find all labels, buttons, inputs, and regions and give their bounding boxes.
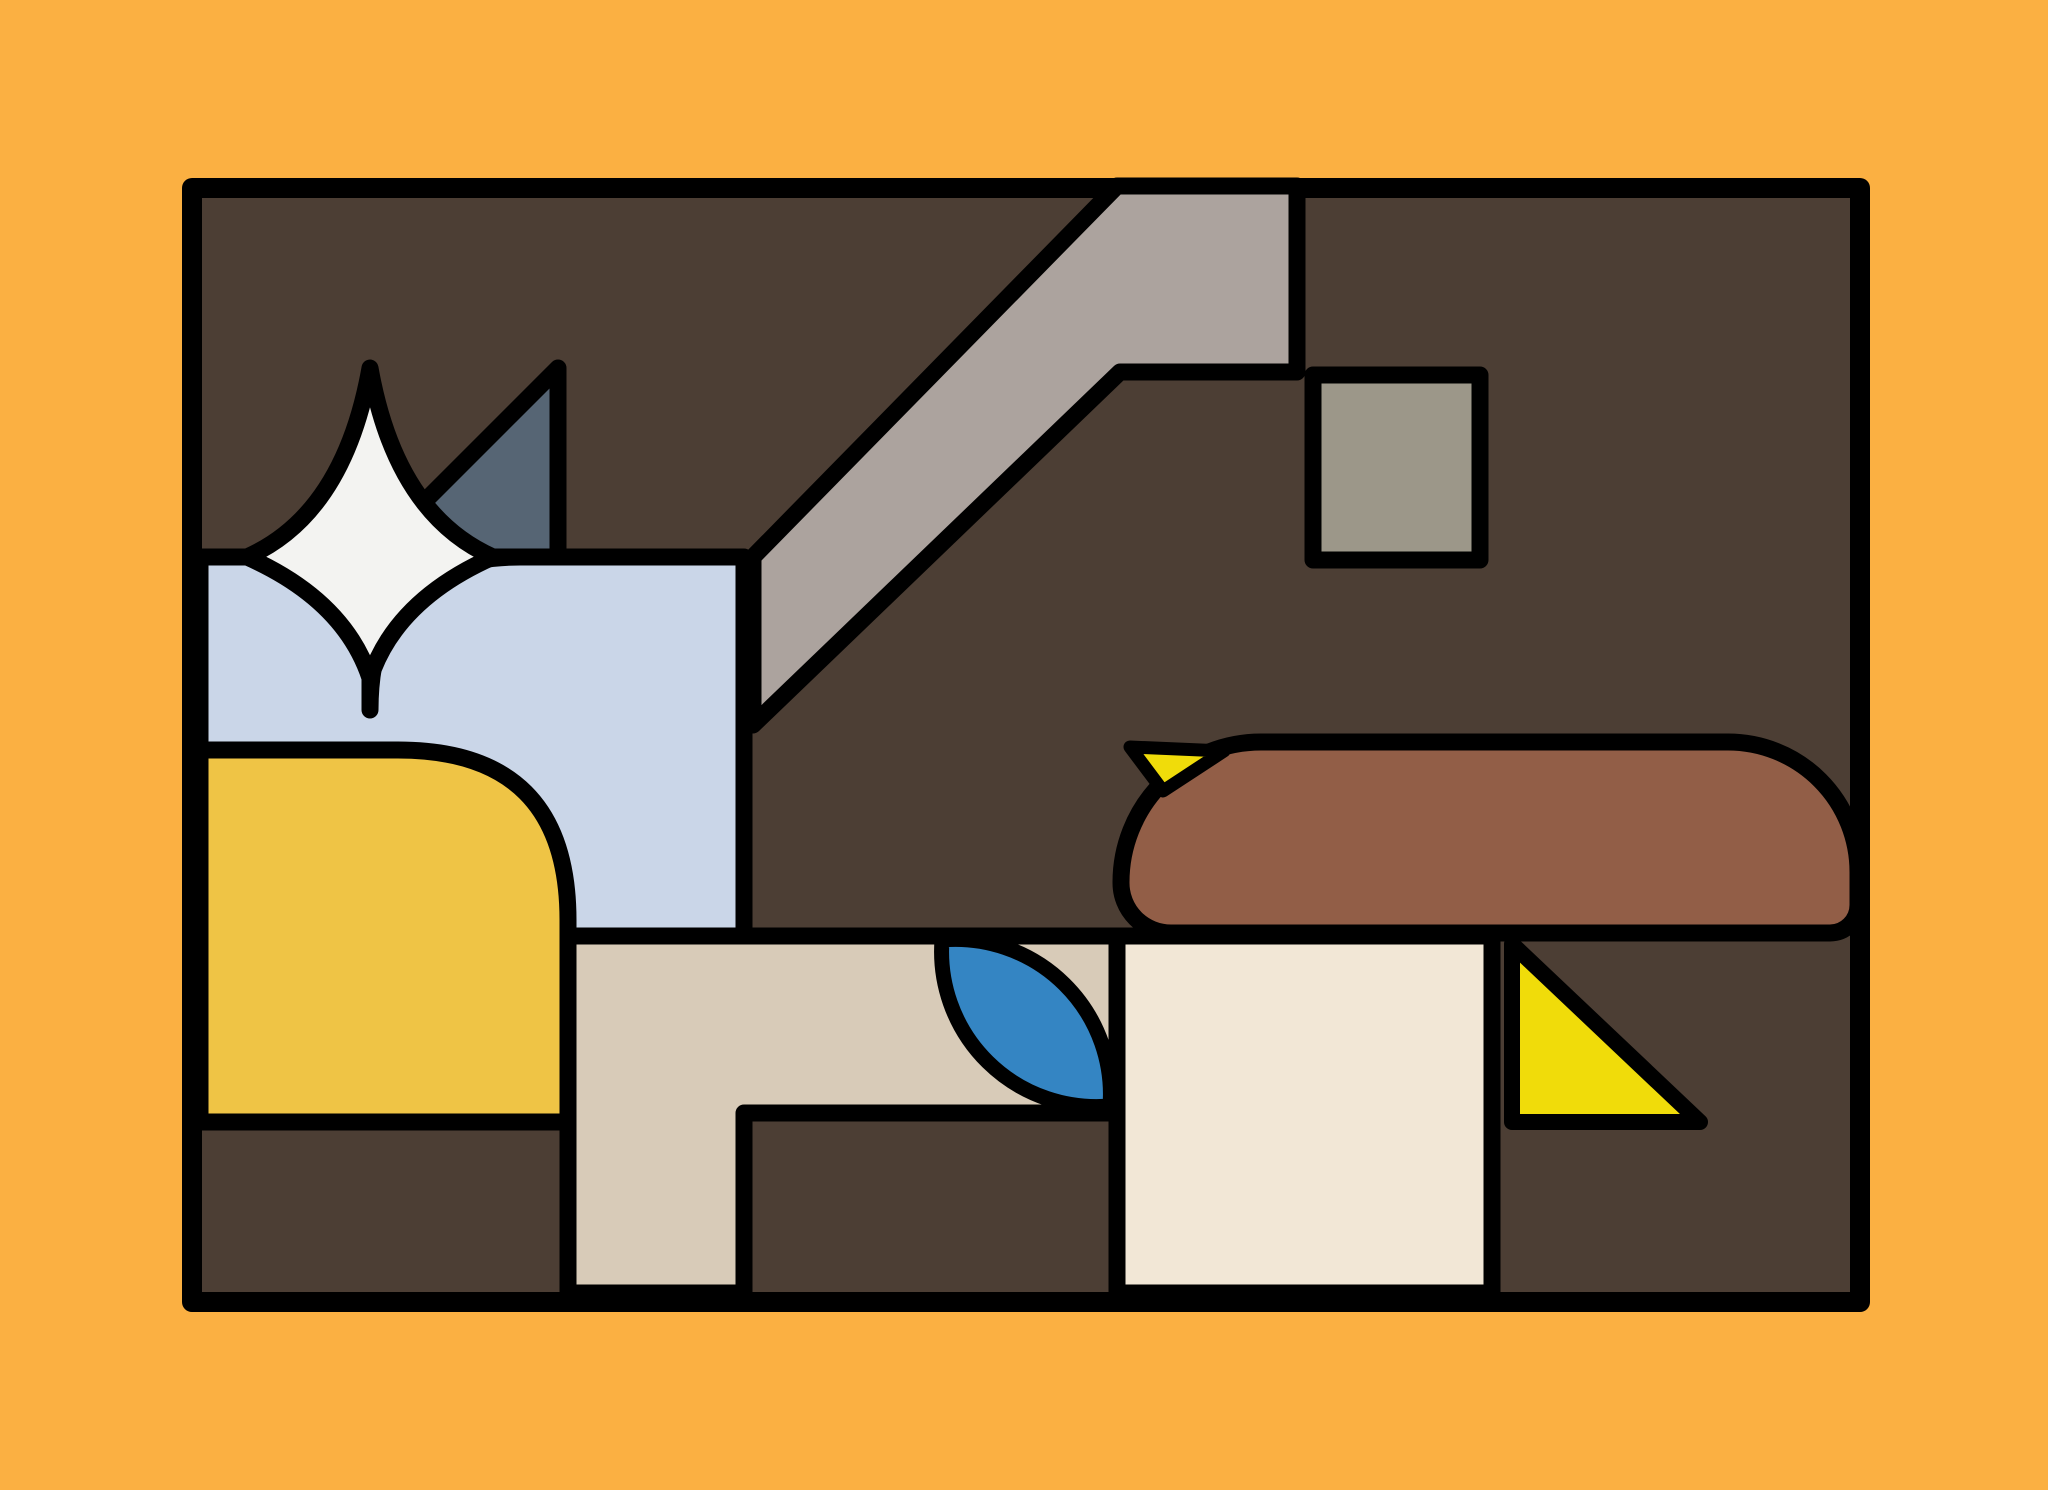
hanging-square-block bbox=[1313, 375, 1480, 560]
brown-loaf bbox=[1121, 742, 1858, 933]
stained-glass-illustration bbox=[0, 0, 2048, 1490]
golden-yellow-block bbox=[200, 750, 568, 1122]
cream-panel bbox=[1117, 936, 1492, 1293]
artwork-stage bbox=[0, 0, 2048, 1490]
